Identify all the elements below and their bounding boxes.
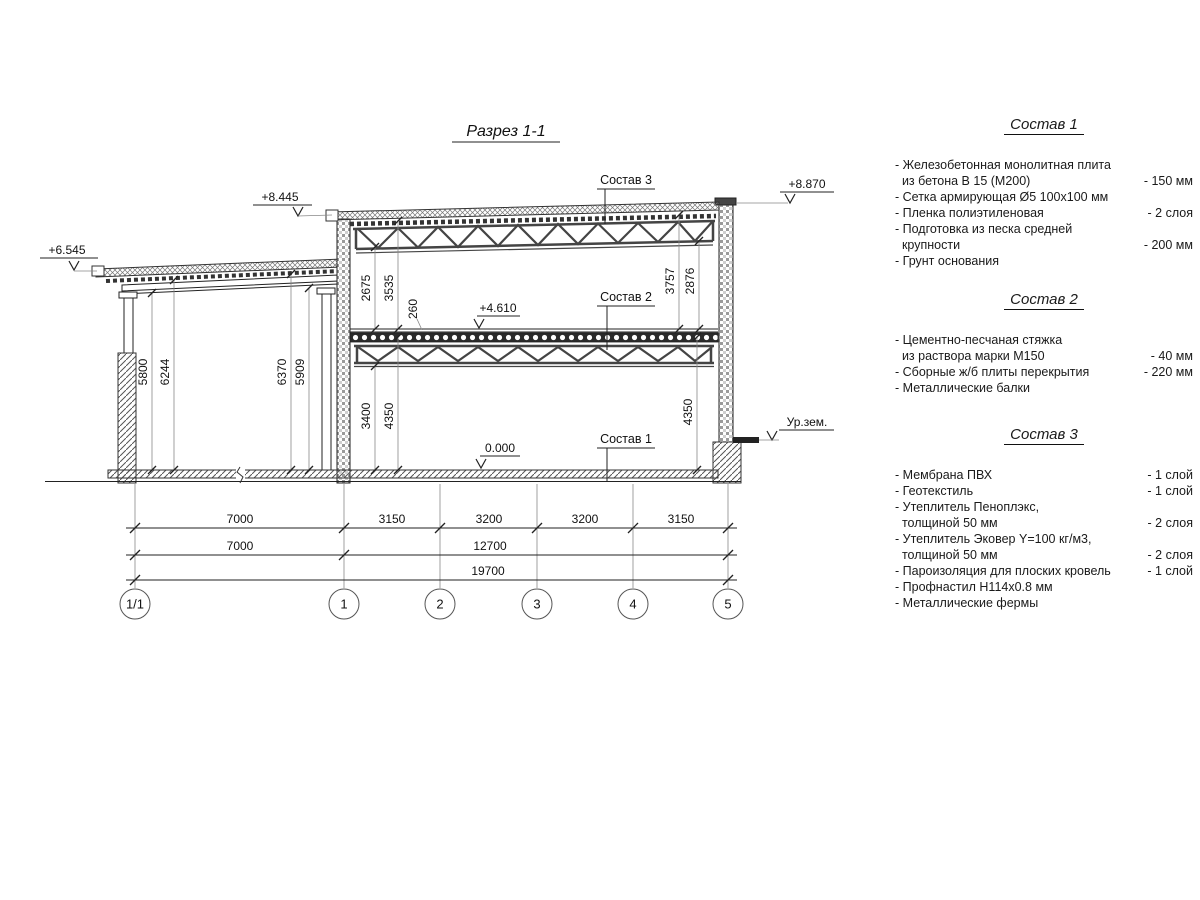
svg-text:Ур.зем.: Ур.зем. — [787, 415, 828, 429]
floor2-slab — [350, 329, 718, 342]
svg-text:2: 2 — [436, 597, 443, 612]
svg-text:7000: 7000 — [227, 512, 254, 526]
svg-text:4350: 4350 — [382, 402, 396, 429]
svg-text:Состав 1: Состав 1 — [600, 432, 652, 446]
drawing-title: Разрез 1-1 — [452, 123, 560, 142]
dimension-row-3: 19700 — [126, 564, 737, 585]
svg-text:4350: 4350 — [681, 398, 695, 425]
axis-bubbles: 1/1 1 2 3 4 5 — [120, 589, 743, 619]
svg-text:Разрез 1-1: Разрез 1-1 — [466, 123, 545, 140]
svg-text:3150: 3150 — [379, 512, 406, 526]
material-item: - Мембрана ПВХ - 1 слой — [895, 467, 1193, 483]
elevation-arrow-icon — [785, 194, 795, 203]
svg-text:2876: 2876 — [683, 267, 697, 294]
elevation-arrow-icon — [476, 459, 486, 468]
elevation-arrow-icon — [69, 261, 79, 270]
dimension-row-1: 7000 3150 3200 3200 3150 — [126, 512, 737, 533]
panel-heading: Состав 2 — [895, 291, 1193, 310]
hollow-core-slab — [350, 333, 718, 342]
svg-text:+8.445: +8.445 — [261, 190, 298, 204]
annex-left-wall — [118, 353, 136, 483]
svg-text:3535: 3535 — [382, 274, 396, 301]
material-item: - Профнастил Н114х0.8 мм — [895, 579, 1193, 595]
elevation-marker-parapet: +8.870 — [737, 177, 834, 203]
svg-text:5909: 5909 — [293, 358, 307, 385]
roof-truss — [353, 221, 715, 253]
axis-circle-1: 1 — [329, 589, 359, 619]
material-panel-sostav2: Состав 2 - Цементно-песчаная стяжка из р… — [895, 291, 1193, 396]
svg-text:3200: 3200 — [476, 512, 503, 526]
svg-text:6244: 6244 — [158, 358, 172, 385]
main-roof — [326, 202, 719, 224]
svg-text:3200: 3200 — [572, 512, 599, 526]
axis-circle-3: 3 — [522, 589, 552, 619]
elevation-arrow-icon — [293, 207, 303, 216]
axis-circle-2: 2 — [425, 589, 455, 619]
dimension-row-2: 7000 12700 — [126, 539, 737, 560]
elevation-marker-zero: 0.000 — [476, 441, 520, 468]
panel-heading: Состав 1 — [895, 116, 1193, 135]
svg-text:19700: 19700 — [471, 564, 505, 578]
svg-text:3150: 3150 — [668, 512, 695, 526]
vertical-dims-annex: 5800 6244 6370 5909 — [136, 270, 313, 474]
elevation-marker-floor2: +4.610 — [474, 301, 520, 328]
main-right-wall — [719, 204, 733, 442]
material-item: - Утеплитель Эковер Y=100 кг/м3, толщино… — [895, 531, 1193, 563]
elevation-arrow-icon — [767, 431, 777, 440]
material-item: - Пленка полиэтиленовая - 2 слоя — [895, 205, 1193, 221]
material-panel-sostav1: Состав 1 - Железобетонная монолитная пли… — [895, 116, 1193, 269]
material-item: - Утеплитель Пеноплэкс, толщиной 50 мм -… — [895, 499, 1193, 531]
svg-text:1/1: 1/1 — [126, 597, 144, 612]
svg-text:0.000: 0.000 — [485, 441, 515, 455]
material-item: - Геотекстиль - 1 слой — [895, 483, 1193, 499]
material-item: - Железобетонная монолитная плита из бет… — [895, 157, 1193, 189]
column-capital — [317, 288, 335, 294]
svg-text:260: 260 — [406, 299, 420, 319]
svg-text:5: 5 — [724, 597, 731, 612]
svg-text:+8.870: +8.870 — [788, 177, 825, 191]
material-item: - Грунт основания — [895, 253, 1193, 269]
main-left-wall — [337, 219, 350, 483]
svg-text:3400: 3400 — [359, 402, 373, 429]
svg-text:5800: 5800 — [136, 358, 150, 385]
annex-right-column — [317, 288, 335, 470]
axis-circle-5: 5 — [713, 589, 743, 619]
axis-circle-1-1: 1/1 — [120, 589, 150, 619]
svg-text:+6.545: +6.545 — [48, 243, 85, 257]
annex-left-column — [119, 292, 137, 353]
annex-roof — [92, 259, 342, 294]
material-panel-sostav3: Состав 3 - Мембрана ПВХ - 1 слой - Геоте… — [895, 426, 1193, 611]
svg-text:2675: 2675 — [359, 274, 373, 301]
drawing-sheet: { "title": "Разрез 1-1", "callouts": { "… — [0, 0, 1200, 900]
svg-text:3: 3 — [533, 597, 540, 612]
material-item: - Цементно-песчаная стяжка из раствора м… — [895, 332, 1193, 364]
material-item: - Сборные ж/б плиты перекрытия - 220 мм — [895, 364, 1193, 380]
svg-text:+4.610: +4.610 — [479, 301, 516, 315]
svg-text:6370: 6370 — [275, 358, 289, 385]
svg-text:Состав 2: Состав 2 — [600, 290, 652, 304]
ground-level-marker: Ур.зем. — [759, 415, 834, 440]
svg-text:4: 4 — [629, 597, 636, 612]
svg-text:3757: 3757 — [663, 267, 677, 294]
column-capital — [119, 292, 137, 298]
ground-floor-slab — [45, 467, 741, 483]
plinth-flashing — [733, 437, 759, 443]
vertical-dims-main-right: 3757 2876 4350 — [663, 211, 703, 474]
material-item: - Металлические балки — [895, 380, 1193, 396]
elevation-marker-main-roof: +8.445 — [253, 190, 332, 216]
dimension-extension-lines — [135, 484, 728, 588]
material-item: - Металлические фермы — [895, 595, 1193, 611]
svg-text:12700: 12700 — [473, 539, 507, 553]
axis-circle-4: 4 — [618, 589, 648, 619]
elevation-marker-annex-roof: +6.545 — [40, 243, 98, 271]
floor2-truss — [354, 346, 714, 367]
section-drawing: Разрез 1-1 — [0, 0, 880, 660]
material-item: - Пароизоляция для плоских кровель - 1 с… — [895, 563, 1193, 579]
elevation-arrow-icon — [474, 319, 484, 328]
svg-text:Состав 3: Состав 3 — [600, 173, 652, 187]
panel-heading: Состав 3 — [895, 426, 1193, 445]
material-item: - Подготовка из песка средней крупности … — [895, 221, 1193, 253]
material-item: - Сетка армирующая Ø5 100x100 мм — [895, 189, 1193, 205]
svg-text:7000: 7000 — [227, 539, 254, 553]
svg-text:1: 1 — [340, 597, 347, 612]
